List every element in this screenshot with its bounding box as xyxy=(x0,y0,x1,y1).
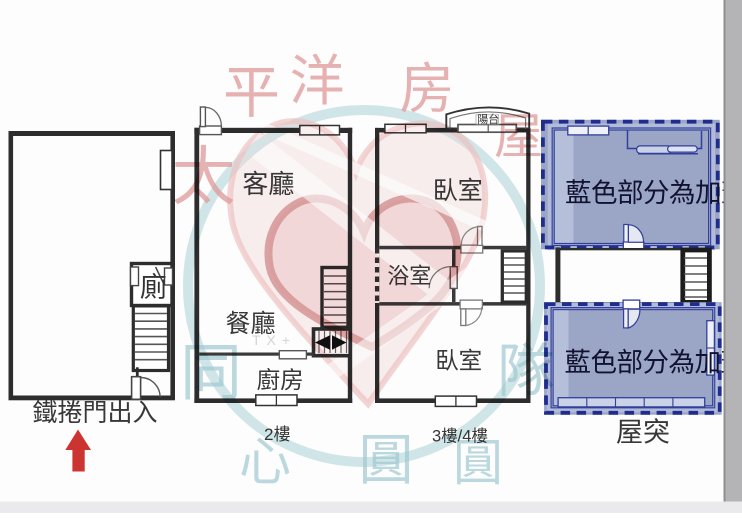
svg-text:圓: 圓 xyxy=(453,435,503,491)
svg-text:太: 太 xyxy=(172,141,236,213)
svg-text:圓: 圓 xyxy=(359,429,414,491)
svg-text:洋: 洋 xyxy=(290,50,345,112)
svg-text:屋突: 屋突 xyxy=(616,418,670,448)
svg-text:鐵捲門出入: 鐵捲門出入 xyxy=(33,399,158,427)
svg-text:廚房: 廚房 xyxy=(257,367,304,393)
svg-text:同: 同 xyxy=(180,339,242,408)
svg-text:隊: 隊 xyxy=(497,339,555,404)
svg-text:藍色部分為加蓋: 藍色部分為加蓋 xyxy=(565,348,742,378)
svg-text:房: 房 xyxy=(400,58,455,120)
svg-text:臥室: 臥室 xyxy=(435,348,482,374)
svg-text:平: 平 xyxy=(223,61,280,125)
svg-text:藍色部分為加蓋: 藍色部分為加蓋 xyxy=(565,178,742,208)
svg-text:心: 心 xyxy=(239,434,291,492)
svg-text:廁: 廁 xyxy=(140,273,167,303)
svg-text:TX+: TX+ xyxy=(252,332,296,348)
svg-text:屋: 屋 xyxy=(494,110,543,164)
